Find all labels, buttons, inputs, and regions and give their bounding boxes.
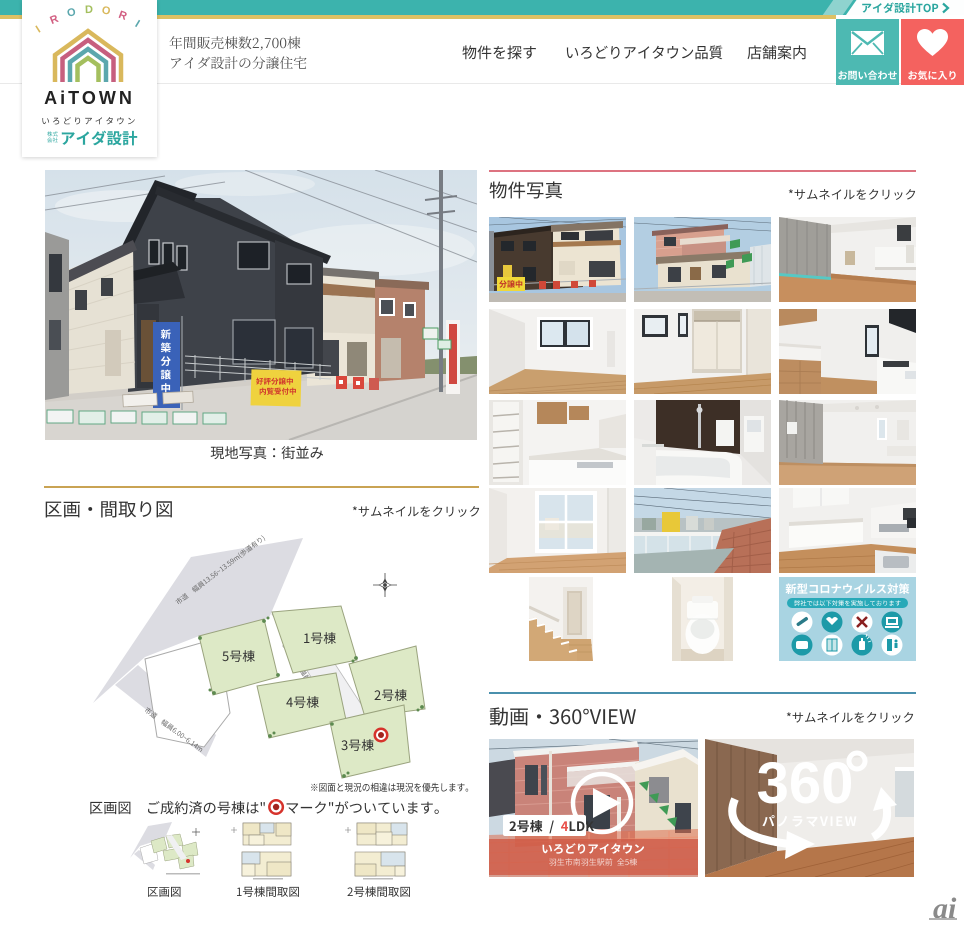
svg-text:O: O (66, 6, 77, 20)
svg-text:R: R (117, 9, 129, 23)
svg-text:D: D (85, 4, 93, 16)
svg-text:360: 360 (757, 751, 854, 816)
svg-text:I: I (34, 24, 43, 36)
svg-text:O: O (101, 4, 112, 17)
svg-text:R: R (48, 13, 60, 27)
svg-text:I: I (133, 18, 142, 30)
